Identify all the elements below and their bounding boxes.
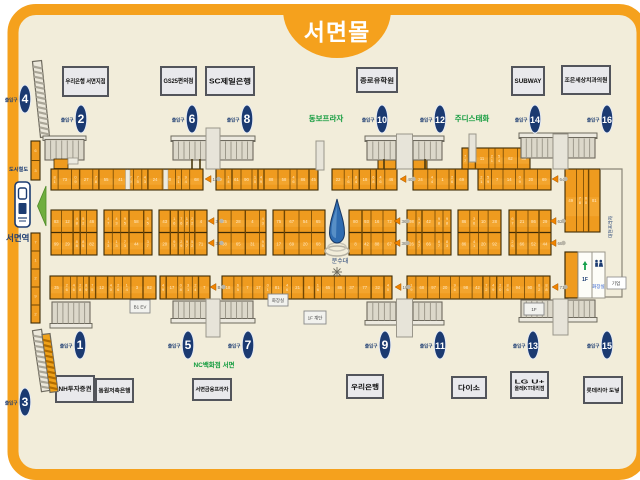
- svg-text:27: 27: [84, 177, 89, 182]
- svg-text:B: B: [218, 285, 221, 290]
- svg-text:45: 45: [311, 177, 316, 182]
- svg-text:17: 17: [256, 285, 261, 290]
- svg-text:동원저축은행: 동원저축은행: [99, 386, 131, 394]
- svg-text:3: 3: [22, 395, 29, 409]
- svg-text:분수대: 분수대: [332, 257, 349, 265]
- svg-text:14: 14: [530, 115, 541, 126]
- svg-text:주디스태화: 주디스태화: [455, 113, 490, 123]
- svg-text:62: 62: [508, 156, 513, 161]
- svg-text:58: 58: [134, 219, 139, 224]
- svg-text:98: 98: [409, 219, 414, 224]
- svg-text:서면역: 서면역: [6, 233, 29, 243]
- svg-text:66: 66: [426, 241, 431, 246]
- svg-text:90: 90: [527, 285, 532, 290]
- svg-text:24: 24: [153, 177, 158, 182]
- svg-text:12: 12: [65, 219, 70, 224]
- svg-text:86: 86: [462, 219, 467, 224]
- svg-text:서면금융프라자: 서면금융프라자: [196, 386, 229, 393]
- svg-text:9: 9: [382, 338, 389, 352]
- svg-text:88: 88: [269, 177, 274, 182]
- svg-text:18: 18: [363, 177, 368, 182]
- svg-text:SUBWAY: SUBWAY: [515, 79, 542, 85]
- svg-text:1: 1: [77, 338, 84, 352]
- svg-text:NC백화점 서면: NC백화점 서면: [193, 360, 234, 369]
- svg-text:출입구: 출입구: [5, 400, 18, 407]
- svg-text:58: 58: [282, 177, 287, 182]
- svg-text:20: 20: [303, 241, 308, 246]
- svg-text:46: 46: [389, 177, 394, 182]
- svg-text:출입구: 출입구: [587, 117, 600, 124]
- svg-text:43: 43: [162, 219, 167, 224]
- svg-text:NH투자증권: NH투자증권: [59, 385, 93, 393]
- svg-text:14: 14: [507, 177, 512, 182]
- svg-text:10: 10: [481, 219, 486, 224]
- svg-text:44: 44: [543, 241, 548, 246]
- svg-text:55: 55: [104, 177, 109, 182]
- svg-text:82: 82: [147, 285, 152, 290]
- svg-text:10: 10: [377, 115, 387, 126]
- svg-text:출입구: 출입구: [587, 343, 600, 350]
- svg-text:67: 67: [387, 241, 392, 246]
- svg-text:44: 44: [134, 241, 139, 246]
- svg-text:69: 69: [289, 241, 294, 246]
- svg-text:조은세상치과의원: 조은세상치과의원: [565, 76, 608, 84]
- svg-text:GS25편의점: GS25편의점: [164, 77, 194, 85]
- svg-text:93: 93: [364, 219, 369, 224]
- svg-text:서면몰: 서면몰: [304, 19, 370, 45]
- svg-text:32: 32: [375, 285, 380, 290]
- svg-text:출입구: 출입구: [172, 117, 185, 124]
- svg-text:68: 68: [419, 285, 424, 290]
- svg-text:29: 29: [543, 219, 548, 224]
- svg-text:18: 18: [226, 285, 231, 290]
- svg-text:66: 66: [520, 241, 525, 246]
- svg-text:46: 46: [89, 219, 94, 224]
- svg-text:16: 16: [375, 219, 380, 224]
- svg-text:98: 98: [463, 285, 468, 290]
- svg-text:81: 81: [275, 285, 280, 290]
- svg-text:출입구: 출입구: [420, 343, 433, 350]
- svg-text:83: 83: [54, 219, 59, 224]
- svg-text:SC제일은행: SC제일은행: [209, 77, 251, 86]
- svg-text:도시철도: 도시철도: [9, 165, 28, 173]
- svg-text:94: 94: [516, 285, 521, 290]
- svg-text:LG U+: LG U+: [515, 380, 545, 386]
- svg-text:출입구: 출입구: [228, 343, 241, 350]
- svg-text:12: 12: [435, 115, 445, 126]
- svg-text:출입구: 출입구: [5, 97, 18, 104]
- svg-text:86: 86: [337, 285, 342, 290]
- svg-text:5: 5: [185, 338, 192, 352]
- svg-text:4: 4: [22, 92, 29, 106]
- svg-text:출입구: 출입구: [515, 117, 528, 124]
- svg-text:다이소: 다이소: [458, 383, 480, 392]
- svg-text:20: 20: [481, 241, 486, 246]
- svg-text:1F: 1F: [531, 307, 537, 312]
- svg-text:출입구: 출입구: [513, 343, 526, 350]
- svg-text:28: 28: [236, 219, 241, 224]
- svg-text:우리은행: 우리은행: [351, 382, 379, 391]
- svg-text:출입구: 출입구: [420, 117, 433, 124]
- svg-text:동보프라자: 동보프라자: [309, 113, 344, 123]
- svg-text:21: 21: [520, 219, 525, 224]
- svg-text:17: 17: [276, 241, 281, 246]
- svg-text:출입구: 출입구: [61, 117, 74, 124]
- svg-text:24: 24: [418, 177, 423, 182]
- svg-text:71: 71: [199, 241, 204, 246]
- svg-text:75: 75: [276, 219, 281, 224]
- svg-text:우리은행 서면지점: 우리은행 서면지점: [66, 78, 106, 86]
- svg-text:97: 97: [431, 285, 436, 290]
- svg-text:86: 86: [531, 219, 536, 224]
- svg-text:88: 88: [375, 241, 380, 246]
- svg-text:77: 77: [362, 285, 367, 290]
- svg-text:82: 82: [89, 241, 94, 246]
- svg-text:29: 29: [65, 241, 70, 246]
- svg-text:28: 28: [492, 219, 497, 224]
- svg-text:2: 2: [78, 112, 85, 126]
- svg-text:73: 73: [62, 177, 67, 182]
- svg-text:65: 65: [236, 241, 241, 246]
- svg-text:12: 12: [99, 285, 104, 290]
- svg-text:출입구: 출입구: [365, 343, 378, 350]
- svg-text:롯데리아 도넣: 롯데리아 도넣: [587, 387, 620, 394]
- svg-text:31: 31: [250, 241, 255, 246]
- svg-text:출입구: 출입구: [362, 117, 375, 124]
- svg-text:13: 13: [528, 341, 538, 352]
- svg-text:65: 65: [316, 219, 321, 224]
- svg-text:화장실: 화장실: [592, 283, 604, 290]
- svg-text:7: 7: [245, 338, 252, 352]
- svg-text:기업: 기업: [612, 280, 620, 287]
- svg-text:20: 20: [443, 285, 448, 290]
- svg-text:86: 86: [301, 177, 306, 182]
- svg-text:B1 EV: B1 EV: [134, 305, 147, 310]
- svg-text:52: 52: [531, 241, 536, 246]
- svg-text:21: 21: [295, 285, 300, 290]
- svg-text:1F: 1F: [582, 277, 588, 283]
- svg-text:출입구: 출입구: [168, 343, 181, 350]
- svg-text:16: 16: [602, 115, 612, 126]
- svg-text:99: 99: [54, 241, 59, 246]
- svg-text:61: 61: [234, 177, 239, 182]
- svg-text:80: 80: [353, 219, 358, 224]
- svg-text:8: 8: [244, 112, 251, 126]
- svg-text:67: 67: [289, 219, 294, 224]
- svg-text:90: 90: [244, 177, 249, 182]
- svg-text:69: 69: [542, 177, 547, 182]
- svg-text:20: 20: [528, 177, 533, 182]
- svg-text:42: 42: [475, 285, 480, 290]
- svg-text:출입구: 출입구: [227, 117, 240, 124]
- svg-text:86: 86: [462, 241, 467, 246]
- svg-text:72: 72: [387, 219, 392, 224]
- svg-text:42: 42: [426, 219, 431, 224]
- svg-text:42: 42: [364, 241, 369, 246]
- svg-text:11: 11: [480, 156, 485, 161]
- svg-text:20: 20: [162, 241, 167, 246]
- svg-text:41: 41: [118, 177, 123, 182]
- svg-text:15: 15: [602, 341, 613, 352]
- svg-text:종로유학원: 종로유학원: [360, 75, 394, 84]
- svg-text:69: 69: [459, 177, 464, 182]
- svg-text:22: 22: [336, 177, 341, 182]
- svg-text:37: 37: [349, 285, 354, 290]
- svg-text:17: 17: [170, 285, 175, 290]
- svg-text:출입구: 출입구: [60, 343, 73, 350]
- svg-text:올레KT대리점: 올레KT대리점: [515, 385, 545, 392]
- svg-text:49: 49: [568, 198, 573, 203]
- svg-text:35: 35: [54, 285, 59, 290]
- svg-text:26: 26: [409, 241, 414, 246]
- svg-text:6: 6: [189, 112, 196, 126]
- svg-text:대현프라자: 대현프라자: [607, 215, 614, 238]
- svg-text:화장실: 화장실: [272, 297, 284, 304]
- svg-text:54: 54: [303, 219, 308, 224]
- svg-text:1F 계단: 1F 계단: [308, 315, 323, 322]
- svg-text:65: 65: [326, 285, 331, 290]
- svg-text:68: 68: [316, 241, 321, 246]
- svg-text:11: 11: [435, 341, 446, 352]
- svg-text:92: 92: [492, 241, 497, 246]
- svg-text:68: 68: [194, 177, 199, 182]
- svg-text:81: 81: [592, 198, 597, 203]
